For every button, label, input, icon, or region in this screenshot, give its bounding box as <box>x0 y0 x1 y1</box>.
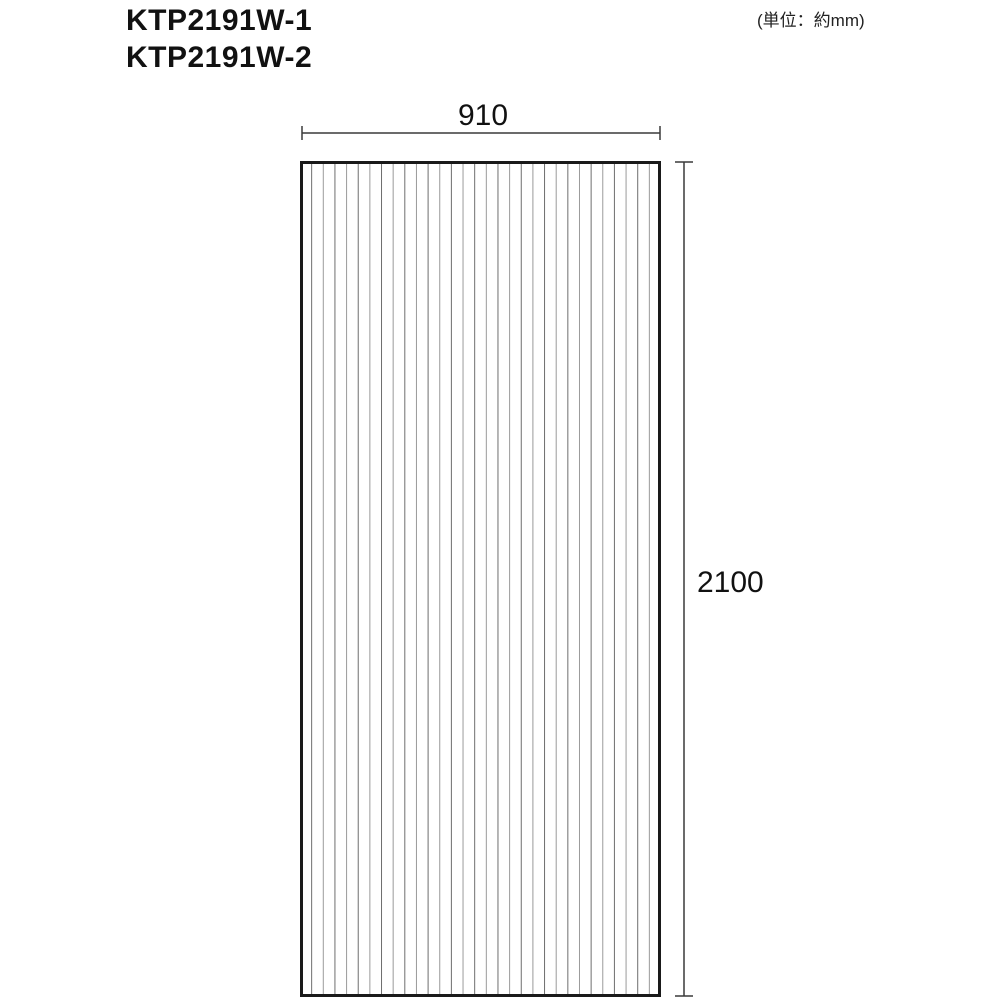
dimension-drawing: 910 2100 <box>0 0 1000 1000</box>
width-dimension-label: 910 <box>458 99 508 132</box>
height-dimension-label: 2100 <box>697 566 764 599</box>
height-dimension: 2100 <box>675 162 764 996</box>
corrugation-stripes <box>312 164 650 994</box>
page: KTP2191W-1 KTP2191W-2 (単位：約mm) 910 2100 <box>0 0 1000 1000</box>
panel-outline <box>302 163 660 996</box>
width-dimension: 910 <box>302 99 660 140</box>
